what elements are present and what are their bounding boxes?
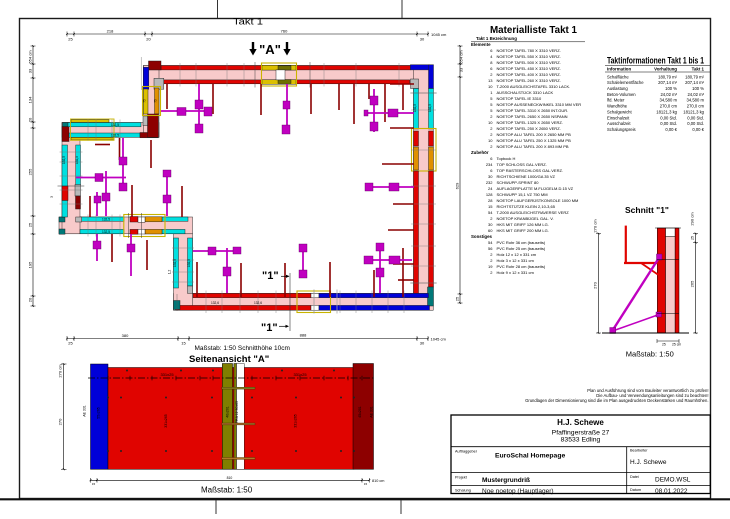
svg-text:654 cm: 654 cm bbox=[459, 50, 464, 64]
svg-text:Vorhaltung: Vorhaltung bbox=[654, 67, 677, 72]
svg-text:132,5: 132,5 bbox=[102, 230, 110, 234]
svg-text:19: 19 bbox=[488, 264, 493, 269]
svg-text:30: 30 bbox=[420, 37, 425, 42]
svg-text:33: 33 bbox=[459, 67, 464, 72]
svg-text:270 cm: 270 cm bbox=[58, 364, 63, 378]
svg-text:265: 265 bbox=[690, 280, 695, 287]
svg-text:NOETOP LAUFGERÜSTKONSOLE 1000: NOETOP LAUFGERÜSTKONSOLE 1000 MM bbox=[497, 198, 579, 203]
svg-text:0,00 Std.: 0,00 Std. bbox=[687, 121, 704, 126]
svg-text:234: 234 bbox=[486, 162, 493, 167]
svg-text:0,00 Std.: 0,00 Std. bbox=[687, 115, 704, 120]
svg-text:134: 134 bbox=[28, 96, 33, 103]
svg-text:3: 3 bbox=[50, 196, 54, 198]
svg-text:Holz 3 x 12 x 331 cm: Holz 3 x 12 x 331 cm bbox=[497, 258, 535, 263]
svg-text:0,00 Std.: 0,00 Std. bbox=[660, 121, 677, 126]
svg-text:15: 15 bbox=[488, 204, 493, 209]
svg-text:Elemente: Elemente bbox=[471, 42, 491, 47]
svg-text:Schalelementfläche: Schalelementfläche bbox=[607, 80, 644, 85]
svg-text:132,5: 132,5 bbox=[75, 156, 79, 164]
svg-text:20: 20 bbox=[28, 117, 33, 122]
svg-text:Auftraggeber: Auftraggeber bbox=[455, 450, 478, 454]
svg-text:Mustergrundriß: Mustergrundriß bbox=[482, 477, 530, 484]
svg-text:24: 24 bbox=[488, 186, 493, 191]
svg-text:Datei: Datei bbox=[630, 475, 639, 479]
svg-text:18121,3 kg: 18121,3 kg bbox=[683, 109, 704, 114]
svg-text:Pfaffingerstraße 27: Pfaffingerstraße 27 bbox=[552, 430, 610, 437]
svg-text:HKS MIT GRIFF 200 MM LG.: HKS MIT GRIFF 200 MM LG. bbox=[497, 228, 549, 233]
svg-text:25: 25 bbox=[28, 222, 33, 227]
svg-text:AUFLAGERPLATTE M.FLÜGELM.D.15: AUFLAGERPLATTE M.FLÜGELM.D.15 VZ bbox=[497, 186, 574, 191]
svg-text:0,00 €: 0,00 € bbox=[692, 127, 704, 132]
svg-text:Materialliste Takt 1: Materialliste Takt 1 bbox=[490, 25, 577, 36]
svg-text:1045 cm: 1045 cm bbox=[431, 32, 447, 37]
svg-text:NOETOP TAFEL 400 X 3310 VERZ.: NOETOP TAFEL 400 X 3310 VERZ. bbox=[497, 72, 561, 77]
svg-text:13: 13 bbox=[488, 78, 493, 83]
svg-text:Datum: Datum bbox=[630, 488, 641, 492]
svg-text:08.01.2022: 08.01.2022 bbox=[655, 488, 688, 495]
svg-text:30: 30 bbox=[488, 222, 493, 227]
svg-text:PVC Rohr 25 cm (bauseits): PVC Rohr 25 cm (bauseits) bbox=[497, 246, 546, 251]
svg-text:270,0 cm: 270,0 cm bbox=[660, 104, 678, 109]
svg-text:132,5: 132,5 bbox=[62, 156, 66, 164]
svg-text:Maßstab: 1:50 Schnitthöhe 10: Maßstab: 1:50 Schnitthöhe 10cm bbox=[195, 345, 290, 352]
svg-text:25: 25 bbox=[455, 296, 460, 301]
svg-text:195: 195 bbox=[28, 261, 33, 268]
svg-text:Projekt: Projekt bbox=[455, 476, 468, 480]
svg-text:Maßstab: 1:50: Maßstab: 1:50 bbox=[626, 350, 674, 359]
svg-text:331x25: 331x25 bbox=[160, 372, 174, 377]
svg-text:28: 28 bbox=[488, 198, 493, 203]
svg-text:10: 10 bbox=[488, 84, 493, 89]
svg-text:218: 218 bbox=[107, 29, 114, 34]
svg-text:NOETOP TAFEL 1325 X 2650 VERZ.: NOETOP TAFEL 1325 X 2650 VERZ. bbox=[497, 120, 563, 125]
svg-text:Schalung: Schalung bbox=[455, 488, 471, 492]
svg-text:180,79 m²: 180,79 m² bbox=[685, 74, 704, 79]
svg-text:Schnitt "1": Schnitt "1" bbox=[625, 205, 669, 215]
svg-text:"A": "A" bbox=[259, 42, 281, 57]
svg-text:H.J. Schewe: H.J. Schewe bbox=[557, 418, 604, 427]
svg-text:24,02 m³: 24,02 m³ bbox=[660, 92, 677, 97]
svg-text:255: 255 bbox=[28, 168, 33, 175]
svg-text:AE 331: AE 331 bbox=[370, 406, 374, 418]
svg-text:NOETOP TAFEL 550 X 3310 VERZ.: NOETOP TAFEL 550 X 3310 VERZ. bbox=[497, 54, 561, 59]
svg-text:0,00 €: 0,00 € bbox=[665, 127, 677, 132]
svg-text:100 %: 100 % bbox=[665, 86, 677, 91]
svg-text:40x201: 40x201 bbox=[225, 406, 229, 418]
svg-text:290 cm: 290 cm bbox=[690, 212, 695, 226]
svg-text:RICHTSCHIENE 1000/GA 35 VZ: RICHTSCHIENE 1000/GA 35 VZ bbox=[497, 174, 556, 179]
svg-text:TRA 12 30x65: TRA 12 30x65 bbox=[235, 401, 239, 423]
svg-text:132,6: 132,6 bbox=[254, 301, 262, 305]
svg-text:Maßstab: 1:50: Maßstab: 1:50 bbox=[201, 486, 253, 495]
svg-text:Wandhöhe: Wandhöhe bbox=[607, 104, 628, 109]
svg-text:Takt 1: Takt 1 bbox=[692, 67, 705, 72]
svg-text:Beton-Volumen: Beton-Volumen bbox=[607, 92, 636, 97]
svg-text:270: 270 bbox=[593, 281, 598, 288]
svg-text:NOETOP AUSSENECKWINKEL 3310 MM: NOETOP AUSSENECKWINKEL 3310 MM VER bbox=[497, 102, 582, 107]
svg-text:NOETOP TAFEL 260 X 3310 VERZ.: NOETOP TAFEL 260 X 3310 VERZ. bbox=[497, 78, 561, 83]
svg-text:20: 20 bbox=[28, 297, 33, 302]
svg-text:75: 75 bbox=[154, 99, 158, 103]
svg-text:132,5: 132,5 bbox=[428, 104, 432, 112]
svg-text:132,5: 132,5 bbox=[413, 104, 417, 112]
svg-text:Zubehör: Zubehör bbox=[471, 150, 489, 155]
svg-text:Information: Information bbox=[607, 67, 631, 72]
svg-text:NOETOP ALU TAFEL 200 X 2650 MM: NOETOP ALU TAFEL 200 X 2650 MM PB bbox=[497, 132, 572, 137]
svg-text:1,2: 1,2 bbox=[168, 270, 172, 275]
svg-text:PVC Rohr 36 cm (bauseits): PVC Rohr 36 cm (bauseits) bbox=[497, 240, 546, 245]
svg-text:Takt 1 Bezeichnung: Takt 1 Bezeichnung bbox=[476, 36, 517, 41]
svg-text:TOP RASTERSCHLOSS GAL.VERZ.: TOP RASTERSCHLOSS GAL.VERZ. bbox=[497, 168, 564, 173]
svg-text:EuroSchal Homepage: EuroSchal Homepage bbox=[495, 453, 565, 460]
svg-text:30: 30 bbox=[420, 341, 425, 346]
svg-text:Topbock H: Topbock H bbox=[497, 156, 516, 161]
svg-text:NOETOP KRANBÜGEL GAL. V.: NOETOP KRANBÜGEL GAL. V. bbox=[497, 216, 554, 221]
svg-text:NOETOP ALU TAFEL 250 X 1325 MM: NOETOP ALU TAFEL 250 X 1325 MM PB bbox=[497, 138, 572, 143]
svg-text:100 %: 100 % bbox=[692, 86, 704, 91]
svg-text:83533 Edling: 83533 Edling bbox=[561, 437, 601, 444]
svg-text:1045 cm: 1045 cm bbox=[431, 337, 447, 342]
svg-text:34,580 m: 34,580 m bbox=[687, 98, 705, 103]
svg-text:132,5: 132,5 bbox=[173, 259, 177, 267]
svg-text:132,5: 132,5 bbox=[111, 123, 119, 127]
svg-text:PVC Rohr 28 cm (bauseits): PVC Rohr 28 cm (bauseits) bbox=[497, 264, 546, 269]
svg-text:DEMO.WSL: DEMO.WSL bbox=[655, 477, 691, 484]
svg-text:NOETOP ALU TAFEL 200 X 893 MM: NOETOP ALU TAFEL 200 X 893 MM PB bbox=[497, 144, 569, 149]
svg-text:34,580 m: 34,580 m bbox=[660, 98, 678, 103]
svg-text:629: 629 bbox=[455, 182, 460, 189]
svg-text:Ausschalzeit: Ausschalzeit bbox=[607, 121, 631, 126]
svg-text:15: 15 bbox=[364, 482, 368, 486]
svg-text:132,6: 132,6 bbox=[211, 301, 219, 305]
svg-text:33: 33 bbox=[28, 68, 33, 73]
svg-text:10: 10 bbox=[488, 138, 493, 143]
svg-text:NOETOP TAFEL 250 X 2650 VERZ.: NOETOP TAFEL 250 X 2650 VERZ. bbox=[497, 126, 561, 131]
svg-text:Schalfläche: Schalfläche bbox=[607, 74, 629, 79]
svg-text:132,5: 132,5 bbox=[111, 134, 119, 138]
svg-text:25 cm: 25 cm bbox=[672, 343, 681, 347]
svg-text:25: 25 bbox=[68, 37, 73, 42]
svg-text:Noe noetop (Hauptlager): Noe noetop (Hauptlager) bbox=[482, 488, 554, 495]
svg-text:30: 30 bbox=[488, 174, 493, 179]
svg-text:Holz 9 x 12 x 331 cm: Holz 9 x 12 x 331 cm bbox=[497, 270, 535, 275]
svg-text:380: 380 bbox=[122, 333, 129, 338]
svg-text:Taktinformationen Takt 1 bis: Taktinformationen Takt 1 bis 1 bbox=[607, 56, 704, 66]
svg-text:15: 15 bbox=[92, 482, 96, 486]
svg-text:10: 10 bbox=[488, 120, 493, 125]
svg-text:270: 270 bbox=[58, 418, 63, 425]
svg-text:Schalungspreis: Schalungspreis bbox=[607, 127, 636, 132]
svg-text:Schalgewicht: Schalgewicht bbox=[607, 109, 633, 114]
svg-text:Sonstiges: Sonstiges bbox=[471, 234, 493, 239]
svg-text:RICHTSTÜTZE KLEIN 2,10-3,65: RICHTSTÜTZE KLEIN 2,10-3,65 bbox=[497, 204, 556, 209]
svg-text:"1": "1" bbox=[261, 322, 278, 334]
svg-text:NOETOP TAFEL 500 X 3310 VERZ.: NOETOP TAFEL 500 X 3310 VERZ. bbox=[497, 60, 561, 65]
svg-text:NOETOP TAFEL 2650 X 2650 NSPAN: NOETOP TAFEL 2650 X 2650 NSPANN bbox=[497, 114, 568, 119]
svg-text:25: 25 bbox=[691, 236, 695, 240]
svg-text:lfd. Meter: lfd. Meter bbox=[607, 98, 625, 103]
svg-text:331x25: 331x25 bbox=[293, 372, 307, 377]
svg-text:760: 760 bbox=[281, 29, 288, 34]
svg-text:25: 25 bbox=[662, 343, 666, 347]
svg-text:SCHWUPP-SPRINT 80: SCHWUPP-SPRINT 80 bbox=[497, 180, 540, 185]
svg-text:18121,3 kg: 18121,3 kg bbox=[656, 109, 677, 114]
svg-text:Grundlagen der Dimensionierung: Grundlagen der Dimensionierung sind die … bbox=[525, 398, 708, 403]
svg-text:270,0 cm: 270,0 cm bbox=[687, 104, 705, 109]
svg-text:810: 810 bbox=[227, 476, 233, 480]
svg-text:331x265: 331x265 bbox=[294, 414, 298, 427]
svg-text:56: 56 bbox=[488, 246, 493, 251]
svg-text:25: 25 bbox=[68, 341, 73, 346]
svg-text:331x265: 331x265 bbox=[164, 414, 168, 427]
svg-text:TOP SCHLOSS GAL.VERZ.: TOP SCHLOSS GAL.VERZ. bbox=[497, 162, 547, 167]
svg-text:0,00 Std.: 0,00 Std. bbox=[660, 115, 677, 120]
svg-text:AE 331: AE 331 bbox=[83, 405, 87, 417]
svg-text:NOETOP TAFEL 780 X 3310 VERZ.: NOETOP TAFEL 780 X 3310 VERZ. bbox=[497, 48, 561, 53]
svg-text:15: 15 bbox=[181, 341, 186, 346]
svg-text:AUSSCHALSTÜCK 3310 LACK: AUSSCHALSTÜCK 3310 LACK bbox=[497, 90, 554, 95]
svg-text:20: 20 bbox=[146, 37, 151, 42]
svg-text:NOETOP TAFEL 3310 X 2650 INT.G: NOETOP TAFEL 3310 X 2650 INT.GUR. bbox=[497, 108, 569, 113]
svg-text:207,14 m²: 207,14 m² bbox=[685, 80, 704, 85]
svg-text:810 cm: 810 cm bbox=[372, 479, 384, 483]
svg-text:Auslastung: Auslastung bbox=[607, 86, 628, 91]
svg-text:24,02 m³: 24,02 m³ bbox=[687, 92, 704, 97]
svg-text:T-2000 AUSGLEICHSTRAVERSE VERZ: T-2000 AUSGLEICHSTRAVERSE VERZ bbox=[497, 210, 570, 215]
svg-text:NOETOP TAFEL 450 X 3310 VERZ.: NOETOP TAFEL 450 X 3310 VERZ. bbox=[497, 66, 561, 71]
svg-text:HKS MIT GRIFF 126 MM LG.: HKS MIT GRIFF 126 MM LG. bbox=[497, 222, 549, 227]
svg-text:"1": "1" bbox=[262, 270, 279, 282]
svg-text:NOETOP TAFEL IE 3310: NOETOP TAFEL IE 3310 bbox=[497, 96, 542, 101]
svg-text:270 cm: 270 cm bbox=[593, 219, 598, 233]
svg-text:SCHWUPP 15,1 VZ 750 MM: SCHWUPP 15,1 VZ 750 MM bbox=[497, 192, 548, 197]
svg-text:Takt 1: Takt 1 bbox=[233, 17, 263, 28]
svg-text:55x265: 55x265 bbox=[97, 407, 101, 419]
svg-text:75: 75 bbox=[143, 99, 147, 103]
svg-text:45x201: 45x201 bbox=[358, 406, 362, 418]
svg-text:54: 54 bbox=[488, 210, 493, 215]
svg-text:128: 128 bbox=[486, 192, 493, 197]
svg-text:207,14 m²: 207,14 m² bbox=[658, 80, 677, 85]
svg-text:232: 232 bbox=[486, 180, 493, 185]
svg-text:132,5: 132,5 bbox=[102, 218, 110, 222]
svg-text:54: 54 bbox=[488, 240, 493, 245]
svg-text:T-2000 AUSGLEICHSTAFEL 3310 LA: T-2000 AUSGLEICHSTAFEL 3310 LACK. bbox=[497, 84, 571, 89]
svg-text:H.J. Schewe: H.J. Schewe bbox=[630, 459, 667, 466]
svg-text:60: 60 bbox=[488, 228, 493, 233]
svg-text:654 cm: 654 cm bbox=[28, 50, 33, 64]
svg-text:Bearbeiter: Bearbeiter bbox=[630, 449, 648, 453]
svg-text:888: 888 bbox=[300, 333, 307, 338]
svg-text:180,79 m²: 180,79 m² bbox=[658, 74, 677, 79]
svg-text:132,5: 132,5 bbox=[187, 259, 191, 267]
svg-text:Einschalzeit: Einschalzeit bbox=[607, 115, 630, 120]
svg-text:Holz 12 x 12 x 331 cm: Holz 12 x 12 x 331 cm bbox=[497, 252, 537, 257]
